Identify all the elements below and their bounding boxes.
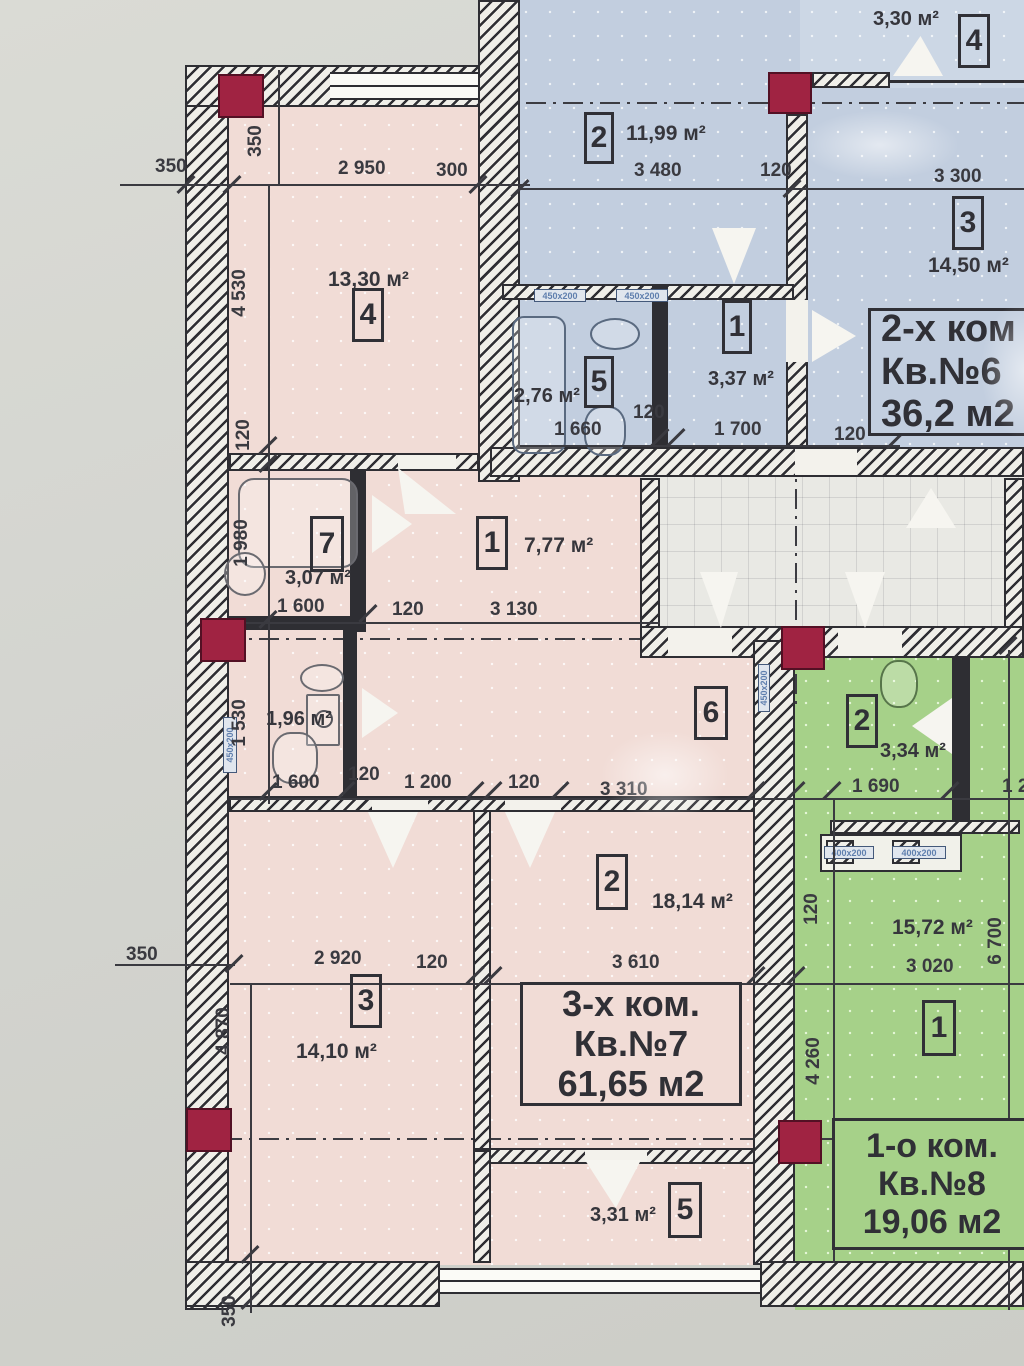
apartment-8-title-box: 1-о ком. Кв.№8 19,06 м2 [832,1118,1024,1250]
wall-apt8-bath-right [952,656,970,820]
dim-label: 120 [508,772,540,794]
balcony-wall [812,72,890,88]
column [186,1108,232,1152]
door-opening-apt7 [668,628,732,656]
dim-label: 3 130 [490,599,538,621]
room-number-box: 1 [922,1000,956,1056]
room-number-box: 4 [352,288,384,342]
door-opening [795,449,857,475]
outer-wall-bottom-right [760,1261,1024,1307]
dim-label: 120 [416,952,448,974]
apartment-7-title-box: 3-х ком. Кв.№7 61,65 м2 [520,982,742,1106]
dim-label: 2 950 [338,158,386,180]
dim-label: 350 [126,944,158,966]
room-area-label: 14,50 м² [928,254,1009,278]
apartment-6-title-box: 2-х ком Кв.№6 36,2 м2 [868,308,1024,436]
room-area-label: 3,37 м² [708,368,774,391]
vent-size-label: 450x200 [616,289,668,302]
room-number-box: 7 [310,516,344,572]
apartment-unit-label: Кв.№6 [881,351,1002,394]
apartment-area-label: 19,06 м2 [835,1203,1024,1241]
apartment-unit-label: Кв.№8 [835,1165,1024,1203]
dim-label: 3 480 [634,160,682,182]
dim-line [230,622,660,624]
room-number-box: 1 [476,516,508,570]
dim-label: 1 200 [404,772,452,794]
apartment-area-label: 61,65 м2 [523,1064,739,1104]
dim-label: 1 600 [277,596,325,618]
room-number-box: 6 [694,686,728,740]
dim-label: 6 700 [985,917,1007,965]
column [781,626,825,670]
vent-size-label: 450x200 [534,289,586,302]
room-area-label: 14,10 м² [296,1040,377,1064]
apartment-area-label: 36,2 м2 [881,393,1015,436]
dim-label: 3 310 [600,779,648,801]
dim-label: 1 600 [272,772,320,794]
dim-label: 300 [436,160,468,182]
apartment-unit-label: Кв.№7 [523,1024,739,1064]
window-top [330,72,480,100]
room-area-label: 3,31 м² [590,1204,656,1227]
apartment-type-label: 2-х ком [881,308,1016,351]
apartment-7-area-center [480,460,660,1265]
vent-size-label: 400x200 [824,846,874,859]
hallway-right-wall [1004,478,1024,628]
apartment-type-label: 3-х ком. [523,984,739,1024]
dim-label: 1 980 [231,519,253,567]
hallway-left-wall [640,478,660,628]
dim-line [278,70,280,186]
column [200,618,246,662]
dim-label: 120 [633,402,665,424]
wall-apt6-bottom [490,447,1024,477]
dim-label: 4 260 [803,1037,825,1085]
dim-label: 120 [348,764,380,786]
room-area-label: 11,99 м² [626,122,706,146]
column [768,72,812,114]
room-number-box: 5 [668,1182,702,1238]
wall-loggia-left [473,1150,491,1263]
room-number-box: 5 [584,356,614,408]
dim-line [250,983,252,1313]
room-number-box: 3 [350,974,382,1028]
room-area-label: 7,77 м² [524,534,593,558]
dim-label: 350 [245,125,267,157]
dim-label: 3 610 [612,952,660,974]
room-number-box: 1 [722,300,752,354]
toilet [880,660,918,708]
room-number-box: 2 [596,854,628,910]
room-number-box: 2 [584,112,614,164]
dim-label: 350 [155,156,187,178]
apartment-type-label: 1-о ком. [835,1127,1024,1165]
dim-label: 1 690 [852,776,900,798]
dim-label: 120 [801,893,823,925]
dim-label: 4 530 [229,269,251,317]
dim-label: 3 300 [934,166,982,188]
dim-label: 3 020 [906,956,954,978]
wall-apt8-bath-bottom [830,820,1020,834]
room-number-box: 3 [952,196,984,250]
vent-size-label: 450x200 [758,664,770,712]
sink [300,664,344,692]
door-opening-apt8 [838,628,902,656]
dim-label: 2 920 [314,948,362,970]
wall-apt7-apt8-divider [753,640,795,1265]
dim-line [520,188,1024,190]
room-area-label: 3,30 м² [873,8,939,31]
dim-label: 1 530 [229,699,251,747]
dim-label: 350 [219,1295,241,1327]
column [218,74,264,118]
dim-label: 4 870 [213,1007,235,1055]
dim-label: 120 [760,160,792,182]
window-loggia [440,1268,760,1294]
vent-size-label: 400x200 [892,846,946,859]
dim-label: 1 2 [1002,776,1024,798]
room-number-box: 4 [958,14,990,68]
sink [590,318,640,350]
room-area-label: 15,72 м² [892,916,973,940]
room-area-label: 1,96 м² [266,708,332,731]
dim-label: 120 [834,424,866,446]
room-number-box: 2 [846,694,878,748]
floor-plan-photo: 400x200 400x200 450x200 450x200 450x200 … [0,0,1024,1366]
dim-label: 1 700 [714,419,762,441]
door-opening [786,300,808,362]
room-area-label: 3,34 м² [880,740,946,763]
dim-label: 120 [392,599,424,621]
door-opening-room4 [398,455,456,469]
dim-label: 120 [233,419,255,451]
column [778,1120,822,1164]
dim-label: 1 660 [554,419,602,441]
room-area-label: 2,76 м² [514,385,580,408]
room-area-label: 3,07 м² [285,567,351,590]
balcony-slab-line [888,80,1024,83]
room-area-label: 18,14 м² [652,890,733,914]
